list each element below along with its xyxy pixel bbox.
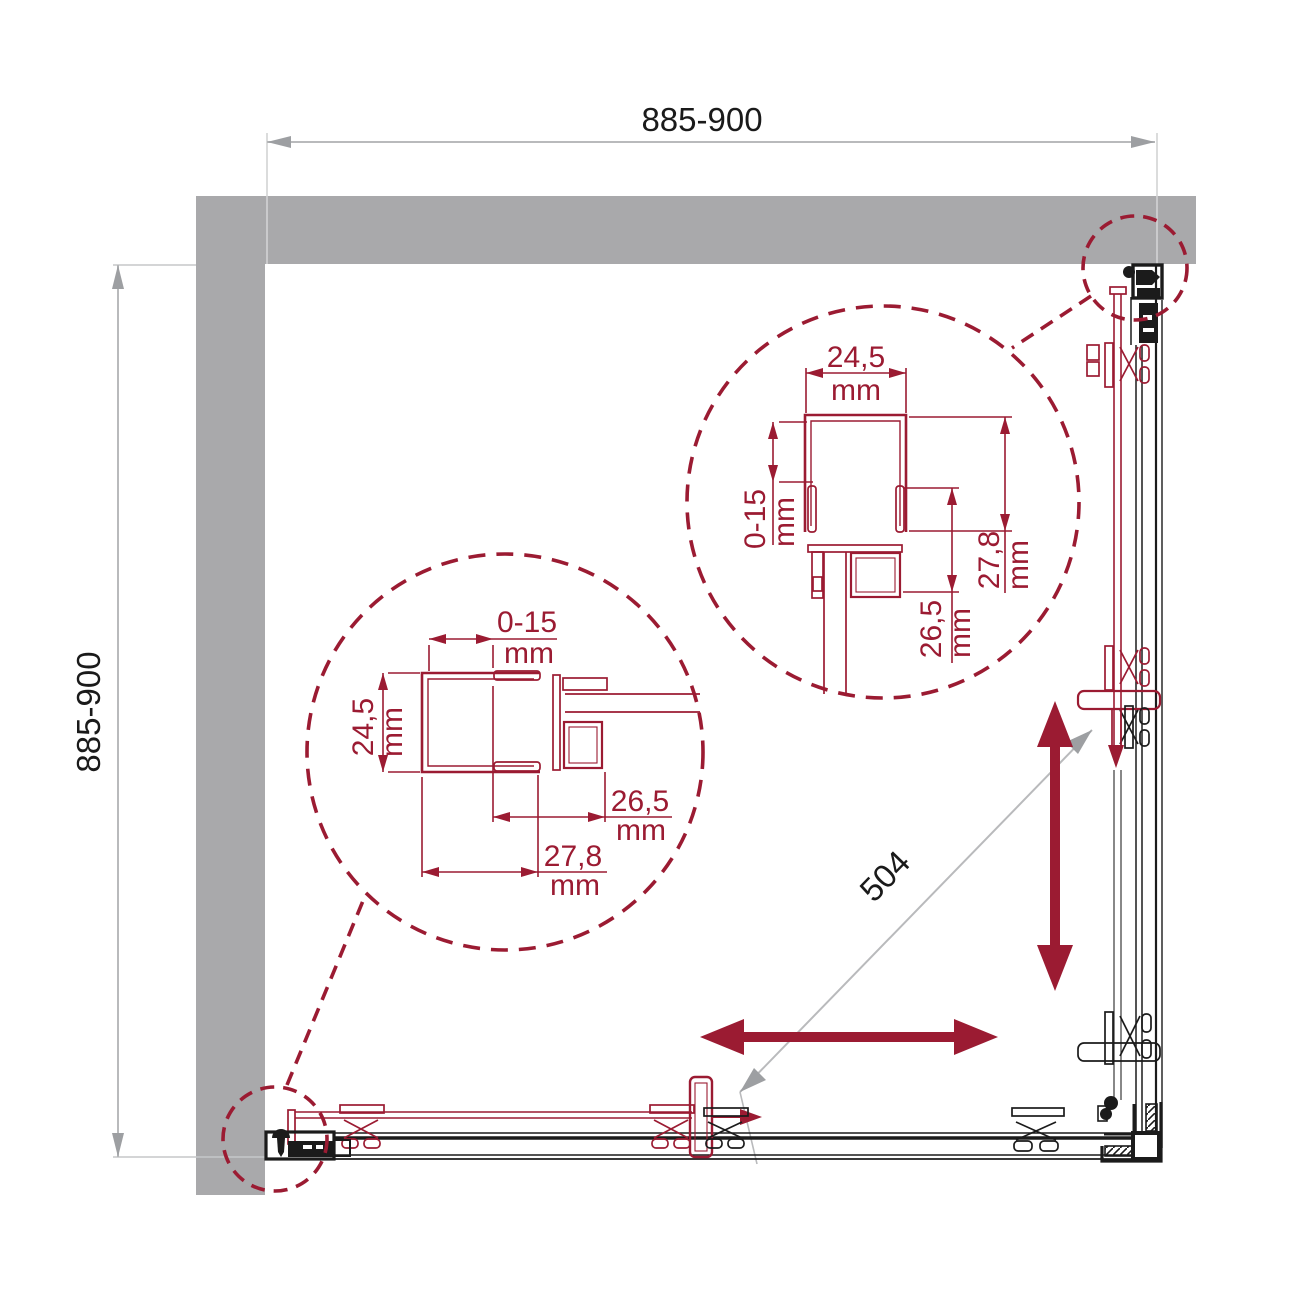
- door-edge-profile: [690, 1077, 712, 1157]
- hatched-profile-h: [1105, 1146, 1132, 1156]
- slide-arrow-vertical-icon: [1037, 701, 1073, 991]
- roller-cluster-bottom-black2: [1012, 1108, 1064, 1151]
- door-bumper-arrow2-icon: [740, 1109, 762, 1125]
- right-panel-assembly: [1078, 265, 1162, 1158]
- arrowhead-left-icon: [267, 136, 291, 148]
- arrowhead-diag-start-icon: [740, 1068, 766, 1092]
- corner-knob-icon: [1104, 1096, 1118, 1110]
- door-edge-profile-inner: [695, 1083, 707, 1151]
- top-corner-fitting: [1123, 265, 1162, 345]
- label-24-5-lower-unit: mm: [376, 707, 409, 757]
- slide-arrow-horizontal-icon: [700, 1019, 998, 1055]
- door-bumper-arrow-icon: [1108, 745, 1124, 768]
- label-0-15-upper-unit: mm: [768, 497, 801, 547]
- door-guide-bar: [1078, 691, 1160, 709]
- label-0-15-lower-unit: mm: [504, 637, 554, 670]
- roller-cluster-right-mid-black: [1120, 706, 1149, 748]
- wall-left: [196, 196, 265, 1195]
- bottom-panel-assembly: [268, 1077, 1158, 1159]
- label-27-8-upper-unit: mm: [1002, 540, 1035, 590]
- roller-cluster-right-top: [1087, 343, 1149, 387]
- label-26-5-upper-unit: mm: [944, 608, 977, 658]
- arrowhead-right-icon: [1131, 136, 1155, 148]
- label-0-15-lower: 0-15: [497, 606, 557, 639]
- door-left-cap: [288, 1110, 295, 1144]
- dimension-top-label: 885-900: [641, 101, 762, 138]
- arrowhead-up-icon: [112, 265, 124, 289]
- screw-head-icon: [1123, 266, 1135, 278]
- detail-view-upper: 24,5 mm 0-15 mm 27,8 mm 26,5 mm: [739, 341, 1035, 694]
- dimension-diagonal-label: 504: [852, 843, 917, 908]
- label-26-5-lower-unit: mm: [616, 814, 666, 847]
- dimension-left-label: 885-900: [70, 651, 107, 772]
- technical-drawing-canvas: 885-900 885-900 504: [0, 0, 1300, 1300]
- roller-cluster-right-bottom: [1105, 1012, 1151, 1064]
- leader-top-right: [1012, 296, 1091, 348]
- profile-section-upper: [805, 415, 906, 694]
- hatched-profile-v: [1146, 1104, 1157, 1131]
- door-top-cap: [1110, 287, 1126, 294]
- label-27-8-lower-unit: mm: [550, 869, 600, 902]
- corner-post: [1098, 1096, 1161, 1161]
- corner-square: [1133, 1133, 1159, 1159]
- profile-section-lower: [422, 671, 700, 772]
- leader-bottom-left: [287, 896, 365, 1085]
- wall-top: [196, 196, 1196, 264]
- shower-enclosure-diagram: 885-900 885-900 504: [0, 0, 1300, 1300]
- label-24-5-upper-unit: mm: [831, 374, 881, 407]
- label-24-5-upper: 24,5: [827, 341, 885, 374]
- detail-view-lower: 0-15 mm 24,5 mm 26,5 mm 27,8 mm: [347, 606, 700, 902]
- arrowhead-down-icon: [112, 1133, 124, 1157]
